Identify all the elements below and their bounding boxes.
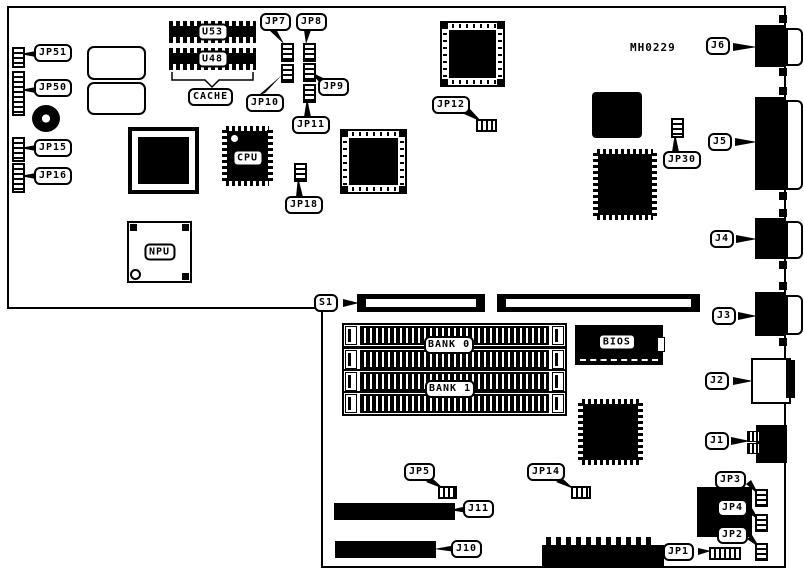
corner-mark [497,23,503,29]
simm-latch [345,394,357,413]
corner-mark [130,224,137,231]
jumper-jp15 [12,137,25,162]
label-bank1: BANK 1 [425,380,475,398]
chip-cpu: CPU [222,126,273,186]
header-j11 [334,503,455,520]
corner-mark [399,186,405,192]
label-j3: J3 [712,307,736,325]
slot-stripe [366,299,476,307]
label-jp30: JP30 [663,151,701,169]
jumper-jp16 [12,163,25,193]
jumper-jp5 [438,486,457,499]
chip-core [449,30,496,78]
jumper-jp9 [303,63,316,82]
simm-latch [345,350,357,369]
label-j2: J2 [705,372,729,390]
terminal-strip [542,545,664,566]
slot-stripe [506,299,691,307]
pin-ticks [400,134,404,189]
connector-j1-plug [747,443,760,454]
simm-latch [552,372,564,391]
connector-j5-shell [786,100,803,190]
jumper-jp18 [294,163,307,182]
corner-mark [342,186,348,192]
edge-tab [779,282,787,290]
connector-j1 [756,425,787,463]
pin1-dot [231,135,238,142]
edge-tab [779,192,787,200]
part-number-text: MH0229 [630,41,676,54]
corner-mark [497,79,503,85]
pin-ticks [345,187,402,191]
label-jp11: JP11 [292,116,330,134]
simm-latch [552,326,564,345]
chip-core [349,138,398,185]
chip-qfp-mid [340,129,407,194]
edge-tab [779,68,787,76]
socket-dash-line [580,359,658,361]
jumper-jp11 [303,84,316,103]
socket-notch [657,337,665,352]
pin-ticks [445,24,500,28]
connector-j6-shell [786,28,803,66]
corner-mark [182,273,189,280]
connector-j1-plug [747,431,760,442]
label-u48: U48 [197,51,228,68]
chip-plcc [592,92,642,138]
connector-j4 [755,218,786,259]
label-jp3: JP3 [715,471,746,489]
label-jp15: JP15 [34,139,72,157]
label-jp7: JP7 [260,13,291,31]
edge-tab [779,15,787,23]
chip-qfp-left [128,127,199,194]
corner-mark [399,131,405,137]
chip-body [598,154,652,215]
jumper-jp10 [281,64,294,83]
label-jp16: JP16 [34,167,72,185]
connector-j3 [755,292,786,336]
connector-j5 [755,97,786,190]
pin-ticks [345,132,402,136]
jumper-jp51 [12,47,25,68]
jumper-jp8 [303,43,316,62]
chip-qfp-top [440,21,505,87]
connector-j6 [755,25,786,67]
corner-mark [442,79,448,85]
corner-mark [342,131,348,137]
jumper-jp4 [755,514,768,532]
chip-qfp-lower [578,399,643,465]
chip-u53: U53 [169,21,256,43]
label-npu: NPU [144,244,175,261]
label-jp2: JP2 [717,526,748,544]
label-jp10: JP10 [246,94,284,112]
label-j5: J5 [708,133,732,151]
jumper-jp12 [476,119,497,132]
label-jp5: JP5 [404,463,435,481]
label-jp8: JP8 [296,13,327,31]
pin-ticks [445,80,500,84]
connector-j2 [751,358,791,404]
label-cpu: CPU [232,150,263,167]
label-j6: J6 [706,37,730,55]
jumper-jp1 [709,547,741,560]
label-jp51: JP51 [34,44,72,62]
label-j11: J11 [463,500,494,518]
jumper-jp7 [281,43,294,62]
header-j10 [335,541,436,558]
label-jp9: JP9 [318,78,349,96]
speaker [32,105,60,132]
cpu-card-slot-1 [357,294,485,312]
pin-ticks [443,26,447,82]
chip-qfp-right [593,149,657,220]
connector-j4-shell [786,221,803,259]
corner-mark [182,224,189,231]
motherboard-diagram: JP51 JP50 JP15 JP16 U53 U48 CACHE CPU [0,0,804,576]
connector-j3-shell [786,295,803,335]
jumper-jp2 [755,543,768,561]
label-jp1: JP1 [663,543,694,561]
edge-tab [779,209,787,217]
simm-latch [345,326,357,345]
pin-ticks [343,134,347,189]
label-s1: S1 [314,294,338,312]
socket-npu: NPU [127,221,192,283]
label-cache: CACHE [188,88,233,106]
oscillator-1 [87,46,146,80]
label-j10: J10 [451,540,482,558]
jumper-jp30 [671,118,684,138]
label-j4: J4 [710,230,734,248]
label-jp50: JP50 [34,79,72,97]
simm-latch [552,350,564,369]
label-jp18: JP18 [285,196,323,214]
edge-tab [779,338,787,346]
label-j1: J1 [705,432,729,450]
jumper-jp3 [755,489,768,507]
simm-latch [345,372,357,391]
simm-latch [552,394,564,413]
label-u53: U53 [197,24,228,41]
chip-u48: U48 [169,48,256,70]
chip-core [138,137,189,184]
jumper-jp14 [571,486,591,499]
label-bios: BIOS [598,333,636,350]
cache-brace [172,72,253,87]
label-jp12: JP12 [432,96,470,114]
connector-j2-edge [786,360,795,398]
chip-bios: BIOS [575,325,663,365]
edge-tab [779,87,787,95]
jumper-jp50 [12,71,25,116]
pin1-mark [130,269,141,280]
edge-tab [779,261,787,269]
chip-body [583,404,638,460]
label-bank0: BANK 0 [424,336,474,354]
oscillator-2 [87,82,146,115]
pin-ticks [498,26,502,82]
corner-mark [442,23,448,29]
label-jp4: JP4 [717,499,748,517]
label-jp14: JP14 [527,463,565,481]
cpu-card-slot-2 [497,294,700,312]
